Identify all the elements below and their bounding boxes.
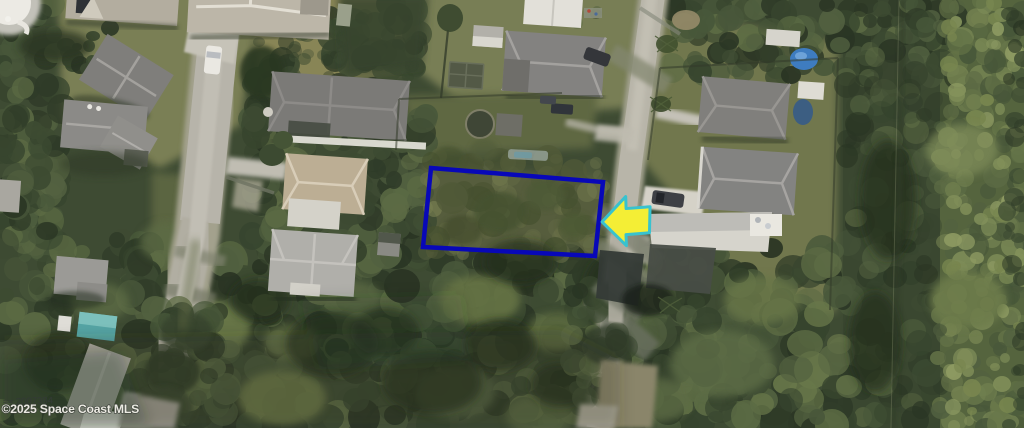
svg-text:©2025 Space Coast MLS: ©2025 Space Coast MLS bbox=[2, 402, 140, 416]
